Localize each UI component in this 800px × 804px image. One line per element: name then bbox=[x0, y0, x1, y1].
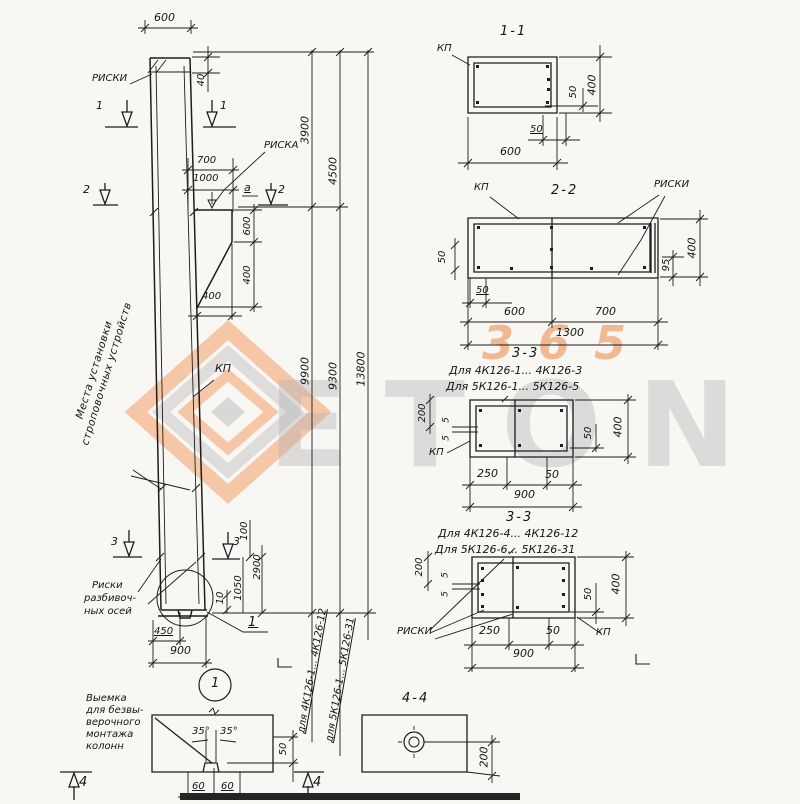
section-3-3b-title: 3-3 bbox=[506, 511, 533, 524]
section-4-4-dim-200: 200 bbox=[479, 747, 490, 768]
blueprint-page: ETON 365 bbox=[0, 0, 800, 800]
notch-dim-50: 50 bbox=[279, 743, 289, 756]
dim-700: 700 bbox=[197, 156, 216, 166]
axes-note-line3: ных осей bbox=[84, 607, 132, 617]
section-2-2-dim-600: 600 bbox=[504, 306, 525, 317]
section-3-3a-dim-200: 200 bbox=[418, 403, 428, 422]
section-3-3a-dim-50r: 50 bbox=[584, 427, 594, 440]
section-3-3a-rebar-dots bbox=[479, 409, 563, 447]
column-elevation-outline bbox=[150, 58, 232, 618]
notch-angle-right: 35° bbox=[220, 727, 238, 737]
dim-1000: 1000 bbox=[193, 174, 218, 184]
section-3-3b-dim-200: 200 bbox=[415, 557, 425, 576]
section-3-3a-title: 3-3 bbox=[512, 347, 539, 360]
bracket-marks bbox=[278, 654, 650, 667]
section-3-3a-lines bbox=[470, 400, 573, 457]
section-3-3b-dim-50: 50 bbox=[546, 625, 560, 636]
section-3-3a-for1: Для 4К126-1... 4К126-3 bbox=[449, 365, 582, 376]
dim-450: 450 bbox=[154, 627, 173, 637]
section-2-2-dim-95: 95 bbox=[662, 259, 672, 272]
section-2-2-dim-400: 400 bbox=[687, 238, 698, 259]
section-1-1-kp: КП bbox=[437, 44, 452, 54]
axes-note-line2: разбивоч- bbox=[84, 594, 136, 604]
dim-2900: 2900 bbox=[253, 554, 263, 579]
section-3-3b-dim-5b: 5 bbox=[442, 591, 451, 597]
section-3-3b-for1: Для 4К126-4... 4К126-12 bbox=[438, 528, 578, 539]
section-1-1-dim-400: 400 bbox=[587, 75, 598, 96]
dim-base-900: 900 bbox=[170, 645, 191, 656]
section3-mark-left: 3 bbox=[111, 536, 118, 547]
notch-dim-60b: 60 bbox=[221, 782, 234, 792]
detail-ref-label: 1 bbox=[248, 616, 258, 629]
section-3-3b-rebar-dots bbox=[481, 566, 565, 609]
section-1-1-title: 1-1 bbox=[500, 25, 527, 38]
section-3-3a-kp: КП bbox=[429, 448, 444, 458]
notch-note-line5: колонн bbox=[86, 742, 124, 752]
section-2-2-kp: КП bbox=[474, 183, 489, 193]
dim-below-console: 400 bbox=[243, 265, 253, 284]
notch-angle-left: 35° bbox=[192, 727, 210, 737]
section-3-3b-lines bbox=[472, 557, 575, 618]
section-4-4-lines bbox=[362, 715, 467, 772]
section-3-3a-dim-50: 50 bbox=[545, 469, 559, 480]
section-2-2-dim-50l: 50 bbox=[438, 251, 448, 264]
section4-mark-right: 4 bbox=[313, 776, 323, 789]
scan-edge-bar bbox=[180, 793, 520, 800]
section-3-3b-dim-5a: 5 bbox=[442, 572, 451, 578]
section2-mark-left: 2 bbox=[83, 184, 90, 195]
section-2-2-lines bbox=[468, 218, 658, 278]
dim-10: 10 bbox=[216, 592, 226, 605]
detail-circle-number: 1 bbox=[211, 677, 221, 690]
notch-note-line1: Выемка bbox=[86, 694, 127, 704]
notch-note-line2: для безвы- bbox=[86, 706, 144, 716]
section4-mark-left: 4 bbox=[79, 776, 89, 789]
riska-label: РИСКА bbox=[264, 141, 298, 151]
section-1-1-rebar-dots bbox=[476, 65, 550, 104]
notch-note-line4: монтажа bbox=[86, 730, 133, 740]
axes-note-line1: Риски bbox=[92, 581, 123, 591]
section-1-1-dim-50v: 50 bbox=[569, 86, 579, 99]
kp-label-column: КП bbox=[215, 363, 231, 374]
blueprint-linework bbox=[0, 0, 800, 800]
section-3-3b-dim-400: 400 bbox=[611, 574, 622, 595]
dim-a-label: а bbox=[244, 182, 251, 193]
section-3-3b-dim-250: 250 bbox=[479, 625, 500, 636]
dim-console-h: 600 bbox=[243, 216, 253, 235]
section-2-2-dim-50b: 50 bbox=[476, 286, 489, 296]
section-3-3a-dim-900: 900 bbox=[514, 489, 535, 500]
section-1-1-lines bbox=[468, 57, 557, 113]
notch-note-line3: верочного bbox=[86, 718, 140, 728]
dim-1050: 1050 bbox=[234, 575, 244, 600]
section-2-2-dim-1300: 1300 bbox=[556, 327, 584, 338]
section-2-2-title: 2-2 bbox=[551, 184, 578, 197]
section-3-3b-for2: Для 5К126-6... 5К126-31 bbox=[435, 544, 575, 555]
dim-9300: 9300 bbox=[328, 362, 339, 390]
dim-top-width: 600 bbox=[154, 12, 175, 23]
section-3-3b-dim-50r: 50 bbox=[584, 588, 594, 601]
section-1-1-dim-50h: 50 bbox=[530, 125, 543, 135]
section-3-3a-for2: Для 5К126-1... 5К126-5 bbox=[446, 381, 579, 392]
section-3-3b-kp: КП bbox=[596, 628, 611, 638]
section-3-3a-dim-400: 400 bbox=[613, 417, 624, 438]
section-3-3a-dim-5b: 5 bbox=[443, 435, 452, 441]
dim-9900: 9900 bbox=[300, 357, 311, 385]
section1-mark-left: 1 bbox=[96, 100, 103, 111]
dim-console-w: 400 bbox=[202, 292, 221, 302]
dim-100: 100 bbox=[240, 521, 250, 540]
section-3-3a-dim-5a: 5 bbox=[443, 417, 452, 423]
section-3-3b-riski: РИСКИ bbox=[397, 627, 432, 637]
section-1-1-dim-600: 600 bbox=[500, 146, 521, 157]
section-2-2-dim-700: 700 bbox=[595, 306, 616, 317]
section-2-2-riski: РИСКИ bbox=[654, 180, 689, 190]
dim-recess: 40 bbox=[197, 74, 207, 87]
dim-3900: 3900 bbox=[300, 116, 311, 144]
notch-dim-60a: 60 bbox=[192, 782, 205, 792]
section2-mark-right: 2 bbox=[278, 184, 285, 195]
dim-13800: 13800 bbox=[356, 352, 367, 387]
section-3-3b-dim-900: 900 bbox=[513, 648, 534, 659]
section-3-3a-dim-250: 250 bbox=[477, 468, 498, 479]
section1-mark-right: 1 bbox=[220, 100, 227, 111]
riski-top-label: РИСКИ bbox=[92, 74, 127, 84]
section-2-2-rebar-dots bbox=[477, 226, 646, 270]
section-4-4-title: 4-4 bbox=[402, 692, 429, 705]
dim-4500: 4500 bbox=[328, 157, 339, 185]
